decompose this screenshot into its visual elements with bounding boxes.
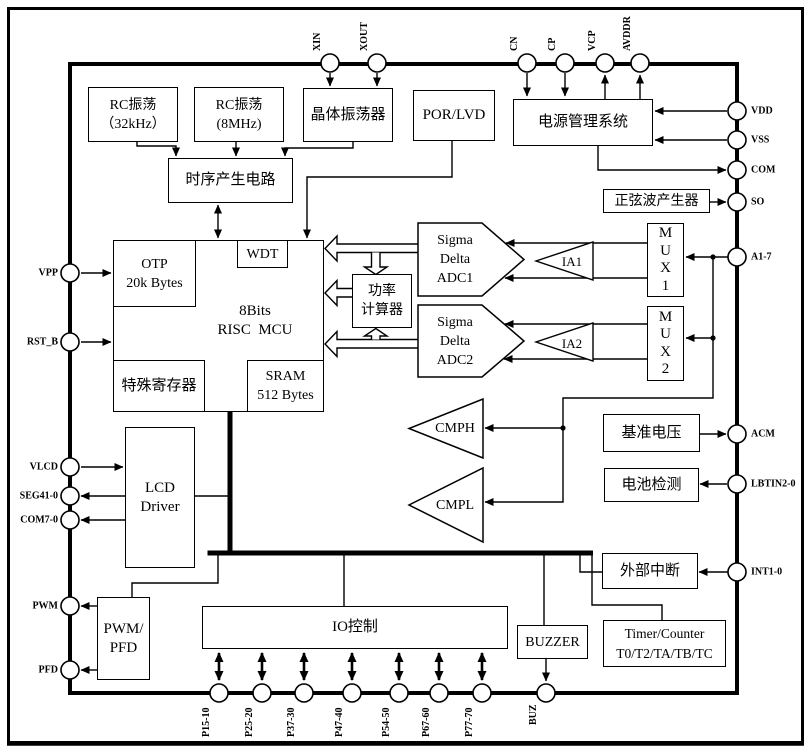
pin-a17 [728,248,746,266]
pin-vss [728,131,746,149]
pin-label-avddr: AVDDR [622,16,634,51]
block-cmpl-label: CMPL [423,497,487,513]
block-adc2-label: Sigma Delta ADC2 [420,312,490,370]
pin-label-com7: COM7-0 [12,515,58,526]
block-buzzer: BUZZER [517,625,588,659]
block-io-ctrl: IO控制 [202,606,508,649]
pin-label-xin: XIN [312,33,324,51]
pin-acm [728,425,746,443]
pin-label-p67: P67-60 [421,708,433,737]
pin-cp [556,54,574,72]
pin-int [728,563,746,581]
pin-label-vlcd: VLCD [12,462,58,473]
pin-vpp [61,264,79,282]
pin-lbtin [728,475,746,493]
pin-p77 [473,684,491,702]
pin-label-p54: P54-50 [381,708,393,737]
block-vref: 基准电压 [603,414,700,452]
block-timing-gen: 时序产生电路 [168,158,293,203]
io-port-arrows [219,653,482,680]
pin-label-vss: VSS [751,135,769,146]
pin-vlcd [61,458,79,476]
pin-xout [368,54,386,72]
block-crystal-osc: 晶体振荡器 [303,88,393,142]
block-pwm-pfd: PWM/ PFD [97,597,150,680]
block-power-calc: 功率 计算器 [352,274,412,328]
pin-label-p25: P25-20 [244,708,256,737]
pin-label-cn: CN [509,37,521,51]
pin-label-p37: P37-30 [286,708,298,737]
pin-p54 [390,684,408,702]
arrow-adc1-pcalc [365,253,388,275]
pin-com [728,161,746,179]
block-ext-interrupt: 外部中断 [602,553,698,589]
pin-label-buz: BUZ [528,704,540,725]
pin-vdd [728,102,746,120]
pin-label-com: COM [751,165,775,176]
wire-pmu-com [598,146,726,170]
pin-avddr [631,54,649,72]
pin-label-acm: ACM [751,429,775,440]
pin-p37 [295,684,313,702]
block-cmph-label: CMPH [423,420,487,436]
pin-label-int: INT1-0 [751,567,782,578]
block-otp: OTP 20k Bytes [113,240,196,307]
block-ia1-label: IA1 [550,253,594,269]
pin-rstb [61,333,79,351]
block-rc-osc-8m: RC振荡 (8MHz) [194,87,284,142]
block-rc-osc-32k: RC振荡 （32kHz） [88,87,178,142]
pin-label-p15: P15-10 [201,708,213,737]
pin-vcp [596,54,614,72]
block-sine-gen: 正弦波产生器 [603,189,710,213]
block-ia2-label: IA2 [550,335,594,351]
block-lcd-driver: LCD Driver [125,427,195,568]
pin-label-so: SO [751,197,764,208]
pin-label-vdd: VDD [751,106,773,117]
pin-label-lbtin: LBTIN2-0 [751,479,795,490]
pin-pfd [61,661,79,679]
pin-p15 [210,684,228,702]
pin-label-p77: P77-70 [464,708,476,737]
pin-xin [321,54,339,72]
pin-label-pwm: PWM [12,601,58,612]
block-power-mgmt: 电源管理系统 [513,99,653,146]
pin-label-rstb: RST_B [12,337,58,348]
pin-seg [61,487,79,505]
wire-crystal-timing [285,142,353,156]
block-battery: 电池检测 [604,468,699,502]
block-mcu-label: 8Bits RISC MCU [175,301,335,341]
pin-label-seg: SEG41-0 [12,491,58,502]
block-special-regs: 特殊寄存器 [113,360,205,412]
system-bus [208,412,594,553]
arrow-adc2-pcalc [365,329,388,340]
pin-p25 [253,684,271,702]
pin-cn [518,54,536,72]
chip-block-diagram: RC振荡 （32kHz） RC振荡 (8MHz) 晶体振荡器 POR/LVD 电… [0,0,811,751]
pin-label-cp: CP [547,38,559,51]
block-adc1-label: Sigma Delta ADC1 [420,230,490,288]
block-mux2: M U X 2 [647,306,684,381]
pin-label-p47: P47-40 [334,708,346,737]
wire-rc32k-timing [137,142,176,156]
wire-bus-extint [580,555,602,572]
pin-label-vpp: VPP [12,268,58,279]
pin-label-vcp: VCP [587,30,599,51]
pin-com7 [61,511,79,529]
block-mux1: M U X 1 [647,223,684,297]
pin-so [728,193,746,211]
block-por-lvd: POR/LVD [413,90,495,141]
pin-label-pfd: PFD [12,665,58,676]
pin-label-a17: A1-7 [751,252,772,263]
pin-label-xout: XOUT [359,22,371,51]
pin-pwm [61,597,79,615]
block-sram: SRAM 512 Bytes [247,360,324,412]
pin-p67 [430,684,448,702]
block-timer: Timer/Counter T0/T2/TA/TB/TC [603,620,726,667]
block-wdt: WDT [237,240,288,268]
pin-p47 [343,684,361,702]
pin-buz [537,684,555,702]
